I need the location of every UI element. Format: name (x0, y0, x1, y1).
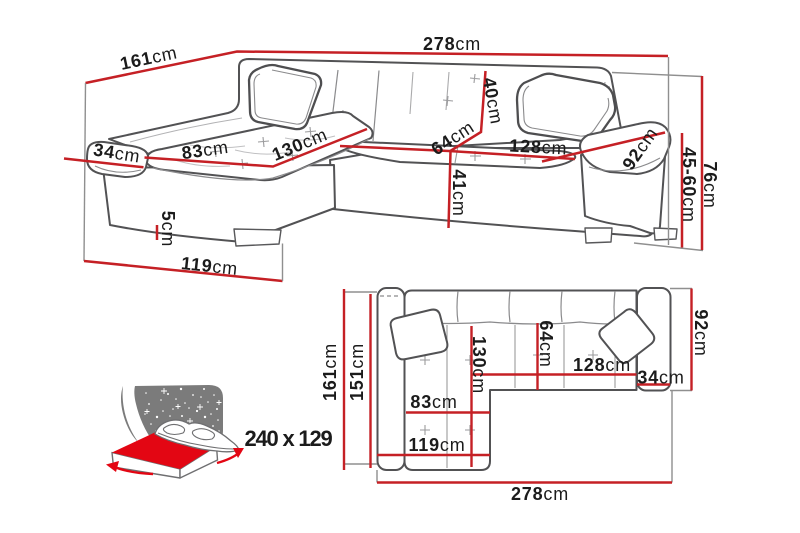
svg-text:130cm: 130cm (469, 336, 489, 394)
svg-text:151cm: 151cm (347, 343, 367, 401)
svg-text:5cm: 5cm (158, 211, 178, 247)
svg-text:278cm: 278cm (511, 484, 569, 504)
svg-text:83cm: 83cm (410, 392, 457, 412)
svg-text:128cm: 128cm (573, 355, 631, 375)
svg-text:76cm: 76cm (700, 161, 720, 208)
svg-text:161cm: 161cm (320, 343, 340, 401)
svg-text:128cm: 128cm (509, 136, 568, 159)
svg-text:240 x 129: 240 x 129 (244, 426, 332, 451)
svg-text:41cm: 41cm (449, 169, 469, 216)
svg-text:119cm: 119cm (408, 435, 465, 455)
svg-text:34cm: 34cm (637, 368, 684, 388)
svg-text:45-60cm: 45-60cm (679, 147, 699, 223)
svg-text:64cm: 64cm (536, 320, 556, 367)
svg-text:92cm: 92cm (691, 309, 711, 356)
svg-text:278cm: 278cm (423, 34, 481, 54)
